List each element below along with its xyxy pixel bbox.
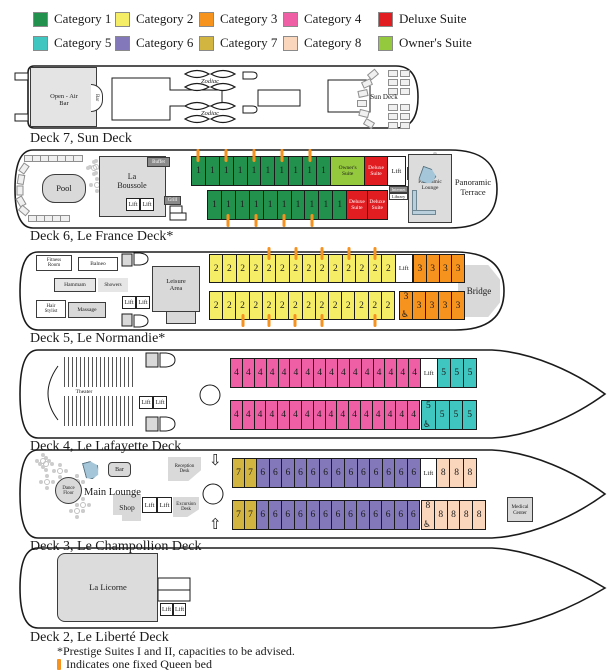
cabin-label: 6: [298, 510, 303, 520]
cabin-label: 6: [348, 468, 353, 478]
cabin-cell: 6: [369, 500, 383, 530]
cabin-label: 2: [280, 301, 285, 311]
cabin-cell: 2: [275, 291, 289, 320]
lounger-icon: [388, 104, 398, 111]
leisure-area-ext: [166, 311, 196, 324]
table-icon: [80, 502, 86, 508]
library: Library: [389, 193, 408, 200]
cabin-label: 2: [267, 301, 272, 311]
lounger-icon: [388, 113, 398, 120]
cabin-cell: 1: [318, 190, 333, 220]
lift: Lift: [136, 296, 150, 309]
cabin-cell: 2: [209, 291, 223, 320]
lift: Lift: [153, 396, 167, 409]
down-arrow-icon: ⇩: [209, 453, 222, 468]
cabin-cell: 6: [281, 500, 295, 530]
footnote-queen-bed-text: Indicates one fixed Queen bed: [66, 657, 212, 671]
cabin-label: 4: [388, 368, 393, 378]
lift-label: Lift: [160, 502, 170, 509]
cabin-label: 7: [248, 510, 253, 520]
cabin-cell: 2: [328, 291, 342, 320]
cabin-cell: 6: [306, 500, 320, 530]
queen-bed-marker-icon: [294, 314, 297, 327]
medical-center: Medical Center: [507, 497, 533, 522]
cabin-label: 4: [281, 410, 286, 420]
lift: Lift: [173, 603, 186, 616]
cabin-cell: 2: [368, 291, 382, 320]
cabin-cell: 2: [302, 291, 316, 320]
legend-item: Owner's Suite: [378, 35, 472, 51]
cabin-cell: 1: [277, 190, 292, 220]
cabin-cell: 6: [382, 458, 396, 488]
cabin-label: 2: [227, 301, 232, 311]
cabin-cell: 2: [262, 291, 276, 320]
cabin-cell: 6: [407, 500, 421, 530]
deck3-label: Deck 3, Le Champollion Deck: [30, 539, 201, 555]
lift-label: Lift: [162, 607, 171, 613]
cabin-cell: 1: [288, 156, 303, 186]
cabin-label: 5: [426, 401, 431, 411]
cabin-cell: 6: [319, 500, 333, 530]
legend-label: Category 1: [54, 11, 111, 27]
cabin-label: 1: [279, 166, 284, 176]
deck6-cabin-row-bottom: 1111111111Deluxe SuiteDeluxe Suite: [207, 190, 388, 220]
table-icon: [57, 468, 63, 474]
lounger-icon: [400, 122, 410, 129]
cabin-label: 4: [377, 368, 382, 378]
legend-label: Category 3: [220, 11, 277, 27]
cabin-label: 4: [282, 368, 287, 378]
cabin-cell: 5: [450, 358, 464, 388]
cabin-cell: 6: [294, 458, 308, 488]
cabin-cell: 5: [463, 358, 477, 388]
cabin-label: 2: [307, 264, 312, 274]
cabin-label: 6: [311, 510, 316, 520]
cabin-label: 4: [293, 410, 298, 420]
queen-bed-marker-icon: [57, 659, 61, 670]
cabin-label: 6: [323, 510, 328, 520]
legend-swatch: [115, 36, 130, 51]
cabin-label: 4: [234, 410, 239, 420]
lift-label: Lift: [156, 400, 165, 406]
cabin-label: 1: [296, 200, 301, 210]
cabin-cell: 8: [463, 458, 477, 488]
legend-item: Deluxe Suite: [378, 11, 467, 27]
cabin-label: 6: [286, 468, 291, 478]
cabin-label: 4: [411, 410, 416, 420]
theater-label: Theater: [62, 389, 106, 395]
lift-label: Lift: [142, 400, 151, 406]
lounger-icon: [400, 70, 410, 77]
wheelchair-icon: ♿: [423, 421, 431, 430]
cabin-cell: 2: [315, 291, 329, 320]
cabin-label: 5: [441, 368, 446, 378]
cabin-label: 1: [224, 166, 229, 176]
cabin-label: 6: [311, 468, 316, 478]
queen-bed-marker-icon: [320, 314, 323, 327]
cabin-label: 3: [430, 301, 435, 311]
cabin-cell: 2: [222, 254, 236, 283]
cabin-label: 4: [340, 410, 345, 420]
legend-item: Category 2: [115, 11, 193, 27]
lounger-icon: [60, 215, 70, 222]
cabin-cell: 6: [331, 458, 345, 488]
cabin-cell: 1: [207, 190, 222, 220]
queen-bed-marker-icon: [374, 247, 377, 260]
cabin-cell: 1: [332, 190, 347, 220]
queen-bed-marker-icon: [268, 247, 271, 260]
queen-bed-marker-icon: [321, 247, 324, 260]
deck4-label: Deck 4, Le Lafayette Deck: [30, 439, 181, 455]
fitness-room: Fitness Room: [36, 255, 72, 271]
deck4-cabin-row-bottom-right: 5♿555: [421, 400, 477, 430]
lift: Lift: [140, 198, 154, 211]
hammam-label: Hammam: [64, 282, 86, 288]
lift-label: Lift: [143, 202, 152, 208]
cabin-cell: 1: [302, 156, 317, 186]
bollard: [15, 73, 28, 80]
cabin-label: 3: [430, 264, 435, 274]
bridge-label: Bridge: [467, 286, 492, 296]
pool-label: Pool: [56, 184, 72, 194]
boat-icon: [134, 315, 148, 327]
cabin-cell: 1: [316, 156, 331, 186]
queen-bed-marker-icon: [308, 149, 311, 162]
legend-item: Category 1: [33, 11, 111, 27]
queen-bed-marker-icon: [253, 149, 256, 162]
legend-item: Category 8: [283, 35, 361, 51]
cabin-label: 4: [399, 410, 404, 420]
ship-deck-plan: Zodiac Zodiac Category 1Category 2Catego…: [0, 0, 612, 671]
cabin-cell: 6: [306, 458, 320, 488]
cabin-cell: 1: [205, 156, 220, 186]
dance-floor-label: Dance Floor: [62, 486, 74, 496]
la-boussole-label: La Boussole: [106, 172, 158, 190]
cabin-label: 1: [212, 200, 217, 210]
cabin-label: 4: [246, 410, 251, 420]
cabin-label: 5: [454, 410, 459, 420]
cabin-label: 6: [336, 468, 341, 478]
cabin-label: 1: [310, 200, 315, 210]
cabin-cell: 5: [449, 400, 464, 430]
cabin-cell: 2: [288, 291, 302, 320]
cabin-label: 1: [252, 166, 257, 176]
cabin-label: 2: [333, 264, 338, 274]
lift-label: Lift: [145, 502, 155, 509]
cabin-label: 2: [306, 301, 311, 311]
cabin-cell: 3: [451, 291, 465, 320]
cabin-label: 2: [254, 264, 259, 274]
cabin-cell: 3: [412, 291, 426, 320]
cabin-cell: 3: [413, 254, 427, 283]
bar: Bar: [108, 462, 131, 477]
cabin-label: 3: [418, 264, 423, 274]
cabin-cell: 1: [221, 190, 236, 220]
cabin-cell: 6: [381, 500, 395, 530]
lift-label: Lift: [139, 300, 148, 306]
cabin-label: 2: [293, 301, 298, 311]
cabin-cell: 3: [438, 291, 452, 320]
lift: Lift: [157, 497, 172, 513]
queen-bed-marker-icon: [255, 214, 258, 227]
cabin-cell: 1: [219, 156, 234, 186]
cabin-cell: 5: [437, 358, 451, 388]
cabin-label: Deluxe Suite: [349, 199, 365, 212]
cabin-label: 3: [417, 301, 422, 311]
legend-label: Category 2: [136, 11, 193, 27]
boat-icon: [160, 353, 175, 367]
cabin-label: 6: [285, 510, 290, 520]
cabin-cell: 1: [260, 156, 275, 186]
dance-floor: Dance Floor: [55, 477, 82, 504]
cabin-label: 8: [451, 510, 456, 520]
boat-icon: [160, 417, 175, 431]
table-icon: [44, 479, 50, 485]
cabin-label: 6: [260, 468, 265, 478]
boat-icon: [243, 72, 257, 79]
deck3-cabin-row-bottom: 776666666666666: [232, 500, 420, 530]
wheelchair-icon: ♿: [401, 311, 409, 320]
legend-label: Category 5: [54, 35, 111, 51]
cabin-label: 2: [360, 264, 365, 274]
panoramic-terrace-label: Panoramic Terrace: [450, 178, 496, 198]
cabin-label: 4: [352, 410, 357, 420]
zodiac-label: Zodiac: [201, 110, 219, 117]
grill-label: Grill: [168, 198, 177, 203]
cabin-cell: Deluxe Suite: [346, 190, 367, 220]
cabin-cell: 2: [262, 254, 276, 283]
cabin-cell: 1: [191, 156, 206, 186]
cabin-cell: 3: [425, 291, 439, 320]
cabin-label: 5: [440, 410, 445, 420]
cabin-label: 1: [337, 200, 342, 210]
stair-circle: [200, 385, 220, 405]
cabin-label: 1: [196, 166, 201, 176]
stair-circle: [203, 484, 223, 504]
cabin-cell: 6: [256, 458, 270, 488]
cabin-cell: 2: [355, 254, 369, 283]
cabin-cell: 2: [381, 291, 395, 320]
lift-label: Lift: [129, 202, 138, 208]
cabin-label: 3: [443, 264, 448, 274]
lift-label: Lift: [175, 607, 184, 613]
deck5-cabin-row-top: 22222222222222Lift: [209, 254, 413, 283]
legend-label: Category 8: [304, 35, 361, 51]
lounger-icon: [73, 155, 83, 162]
hair-stylist: Hair Stylist: [36, 300, 66, 318]
lift-cell: Lift: [420, 358, 438, 388]
cabin-cell: 6: [268, 500, 282, 530]
queen-bed-marker-icon: [294, 247, 297, 260]
cabin-label: 2: [227, 264, 232, 274]
pool: Pool: [42, 174, 86, 203]
cabin-label: 6: [273, 510, 278, 520]
cabin-label: 1: [240, 200, 245, 210]
cabin-label: 2: [253, 301, 258, 311]
cabin-cell: 6: [394, 458, 408, 488]
cabin-label: 4: [246, 368, 251, 378]
cabin-label: 6: [348, 510, 353, 520]
lift: Lift: [122, 296, 136, 309]
buffet-label: Buffet: [152, 160, 165, 165]
cabin-label: 3: [404, 292, 409, 302]
cabin-cell: 1: [249, 190, 264, 220]
cabin-label: 8: [467, 468, 472, 478]
cabin-cell: 6: [256, 500, 270, 530]
cabin-cell: 1: [274, 156, 289, 186]
queen-bed-marker-icon: [241, 314, 244, 327]
lift-label: Lift: [125, 300, 134, 306]
queen-bed-marker-icon: [347, 247, 350, 260]
cabin-cell: Deluxe Suite: [367, 190, 388, 220]
showers-label: Showers: [104, 283, 121, 288]
legend-item: Category 4: [283, 11, 361, 27]
balneo-label: Balneo: [90, 261, 106, 267]
legend-label: Deluxe Suite: [399, 11, 467, 27]
cabin-label: 4: [388, 410, 393, 420]
cabin-label: 2: [280, 264, 285, 274]
bar-label: Bar: [115, 467, 124, 473]
massage-label: Massage: [77, 307, 96, 313]
cabin-cell: 2: [222, 291, 236, 320]
cabin-label: 6: [336, 510, 341, 520]
lounger-icon: [17, 186, 24, 196]
cabin-label: 1: [254, 200, 259, 210]
cabin-label: 4: [341, 368, 346, 378]
cabin-label: 7: [236, 510, 241, 520]
legend-swatch: [199, 36, 214, 51]
cabin-label: 6: [361, 510, 366, 520]
medical-center-label: Medical Center: [512, 504, 529, 516]
deck3-cabin-row-bottom-right: 8♿8888: [421, 500, 486, 530]
legend-item: Category 5: [33, 35, 111, 51]
excursion-desk-label: Excursion Desk: [176, 502, 195, 512]
queen-bed-marker-icon: [283, 214, 286, 227]
cabin-cell: 5♿: [421, 400, 436, 430]
cabin-cell: 2: [315, 254, 329, 283]
sun-deck-label: Sun Deck: [362, 93, 406, 101]
queen-bed-marker-icon: [227, 214, 230, 227]
cabin-label: 3: [456, 301, 461, 311]
cabin-label: 8: [426, 501, 431, 511]
bollard: [15, 114, 28, 121]
bar-label: Bar: [94, 94, 99, 101]
legend-label: Owner's Suite: [399, 35, 472, 51]
cabin-label: 4: [305, 410, 310, 420]
reception-desk-label: Reception Desk: [175, 464, 194, 474]
lounger-icon: [400, 113, 410, 120]
lift-cell: Lift: [387, 156, 406, 186]
cabin-label: 1: [323, 200, 328, 210]
deck6-cabin-row-top: 1111111111Owner's SuiteDeluxe SuiteLift: [191, 156, 406, 186]
cabin-label: 8: [454, 468, 459, 478]
hammam: Hammam: [54, 278, 96, 292]
queen-bed-marker-icon: [197, 149, 200, 162]
cabin-label: 1: [226, 200, 231, 210]
cabin-label: 4: [317, 410, 322, 420]
balneo: Balneo: [78, 257, 118, 271]
deck5-label: Deck 5, Le Normandie*: [30, 331, 165, 347]
cabin-label: Lift: [423, 470, 433, 477]
cabin-label: 6: [260, 510, 265, 520]
legend-item: Category 6: [115, 35, 193, 51]
legend-swatch: [283, 36, 298, 51]
buffet: Buffet: [147, 157, 170, 167]
legend-swatch: [378, 12, 393, 27]
cabin-cell: 2: [236, 254, 250, 283]
cabin-label: 1: [266, 166, 271, 176]
deck4-cabin-row-bottom: 4444444444444444: [230, 400, 420, 430]
cabin-label: 1: [293, 166, 298, 176]
cabin-cell: 2: [341, 291, 355, 320]
cabin-label: Lift: [391, 168, 401, 175]
cabin-cell: 3♿: [399, 291, 413, 320]
cabin-cell: 6: [269, 458, 283, 488]
legend-label: Category 7: [220, 35, 277, 51]
cabin-cell: 2: [249, 254, 263, 283]
cabin-label: 4: [329, 368, 334, 378]
queen-bed-marker-icon: [310, 214, 313, 227]
cabin-cell: 1: [263, 190, 278, 220]
cabin-cell: 6: [294, 500, 308, 530]
cabin-label: 1: [282, 200, 287, 210]
cabin-cell: 5: [462, 400, 477, 430]
internet-label: Internet: [392, 187, 406, 192]
cabin-label: 6: [411, 510, 416, 520]
footnote-queen-bed: Indicates one fixed Queen bed: [57, 657, 212, 671]
cabin-label: 2: [346, 264, 351, 274]
cabin-cell: 2: [354, 291, 368, 320]
cabin-label: 6: [399, 468, 404, 478]
cabin-label: 4: [270, 368, 275, 378]
cabin-label: 6: [298, 468, 303, 478]
cabin-cell: 8: [447, 500, 461, 530]
cabin-cell: 6: [356, 500, 370, 530]
cabin-cell: 3: [451, 254, 465, 283]
cabin-cell: 4: [407, 400, 420, 430]
cabin-label: 1: [307, 166, 312, 176]
lift-cell: Lift: [420, 458, 438, 488]
cabin-label: 6: [374, 468, 379, 478]
boat-icon: [243, 106, 257, 113]
cabin-label: Lift: [399, 265, 409, 272]
cabin-cell: 5: [435, 400, 450, 430]
cabin-cell: 6: [281, 458, 295, 488]
lounger-icon: [400, 79, 410, 86]
legend-item: Category 7: [199, 35, 277, 51]
cabin-label: 4: [305, 368, 310, 378]
cabin-label: 2: [320, 264, 325, 274]
legend-swatch: [378, 36, 393, 51]
cabin-label: Owner's Suite: [339, 165, 357, 178]
wheelchair-icon: ♿: [423, 521, 431, 530]
cabin-label: 4: [365, 368, 370, 378]
deck3-cabin-row-top: 776666666666666Lift888: [232, 458, 477, 488]
cabin-label: 4: [258, 410, 263, 420]
cabin-label: 6: [386, 510, 391, 520]
cabin-label: 4: [400, 368, 405, 378]
cabin-label: 3: [456, 264, 461, 274]
cabin-cell: 8♿: [421, 500, 435, 530]
cabin-label: 6: [273, 468, 278, 478]
cabin-label: 6: [323, 468, 328, 478]
la-licorne-label: La Licorne: [72, 583, 144, 593]
cabin-label: 2: [386, 301, 391, 311]
cabin-label: Deluxe Suite: [368, 165, 384, 178]
cabin-label: 4: [376, 410, 381, 420]
cabin-label: 1: [210, 166, 215, 176]
cabin-label: 2: [214, 264, 219, 274]
